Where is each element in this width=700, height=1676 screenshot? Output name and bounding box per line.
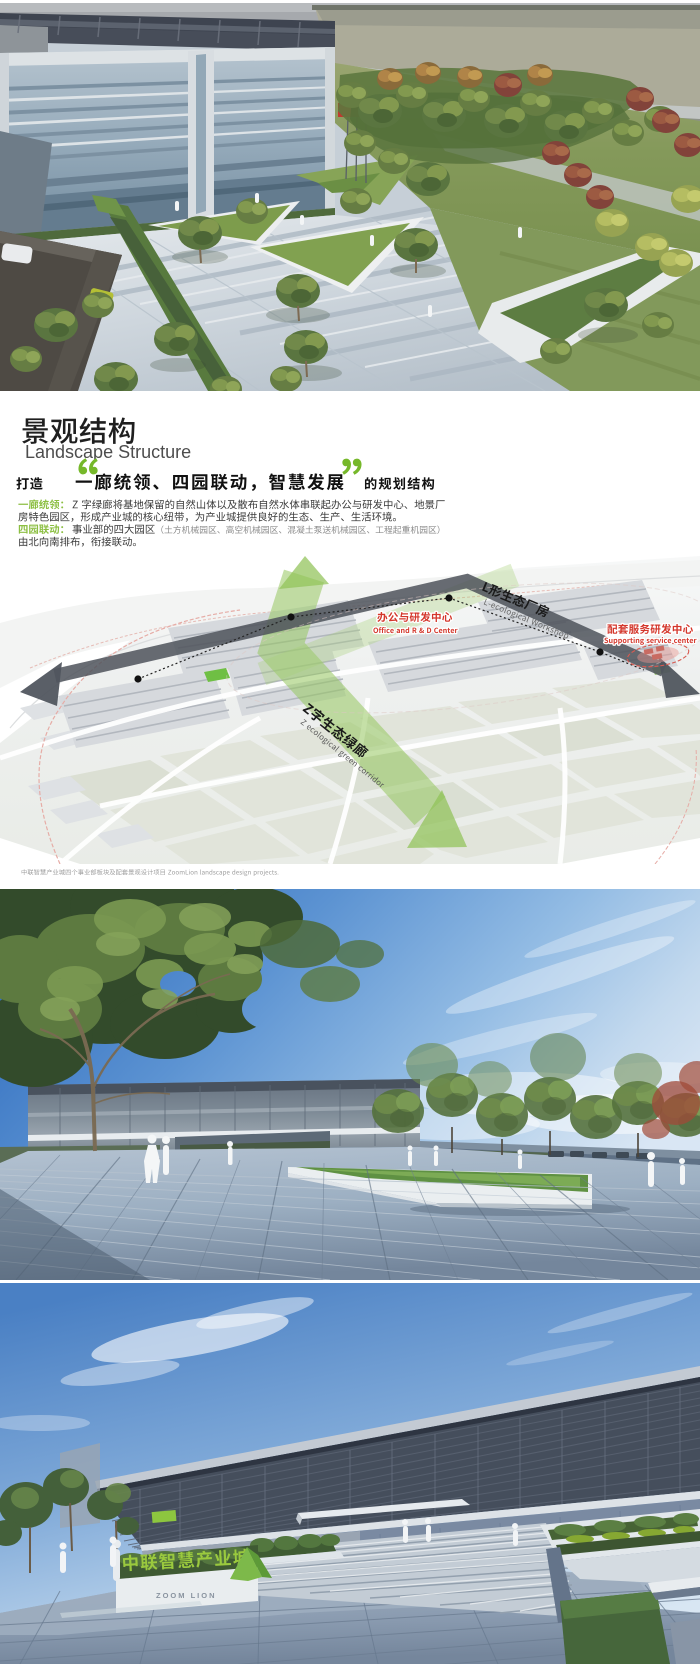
svg-text:ZOOM LION: ZOOM LION [156, 1591, 217, 1600]
